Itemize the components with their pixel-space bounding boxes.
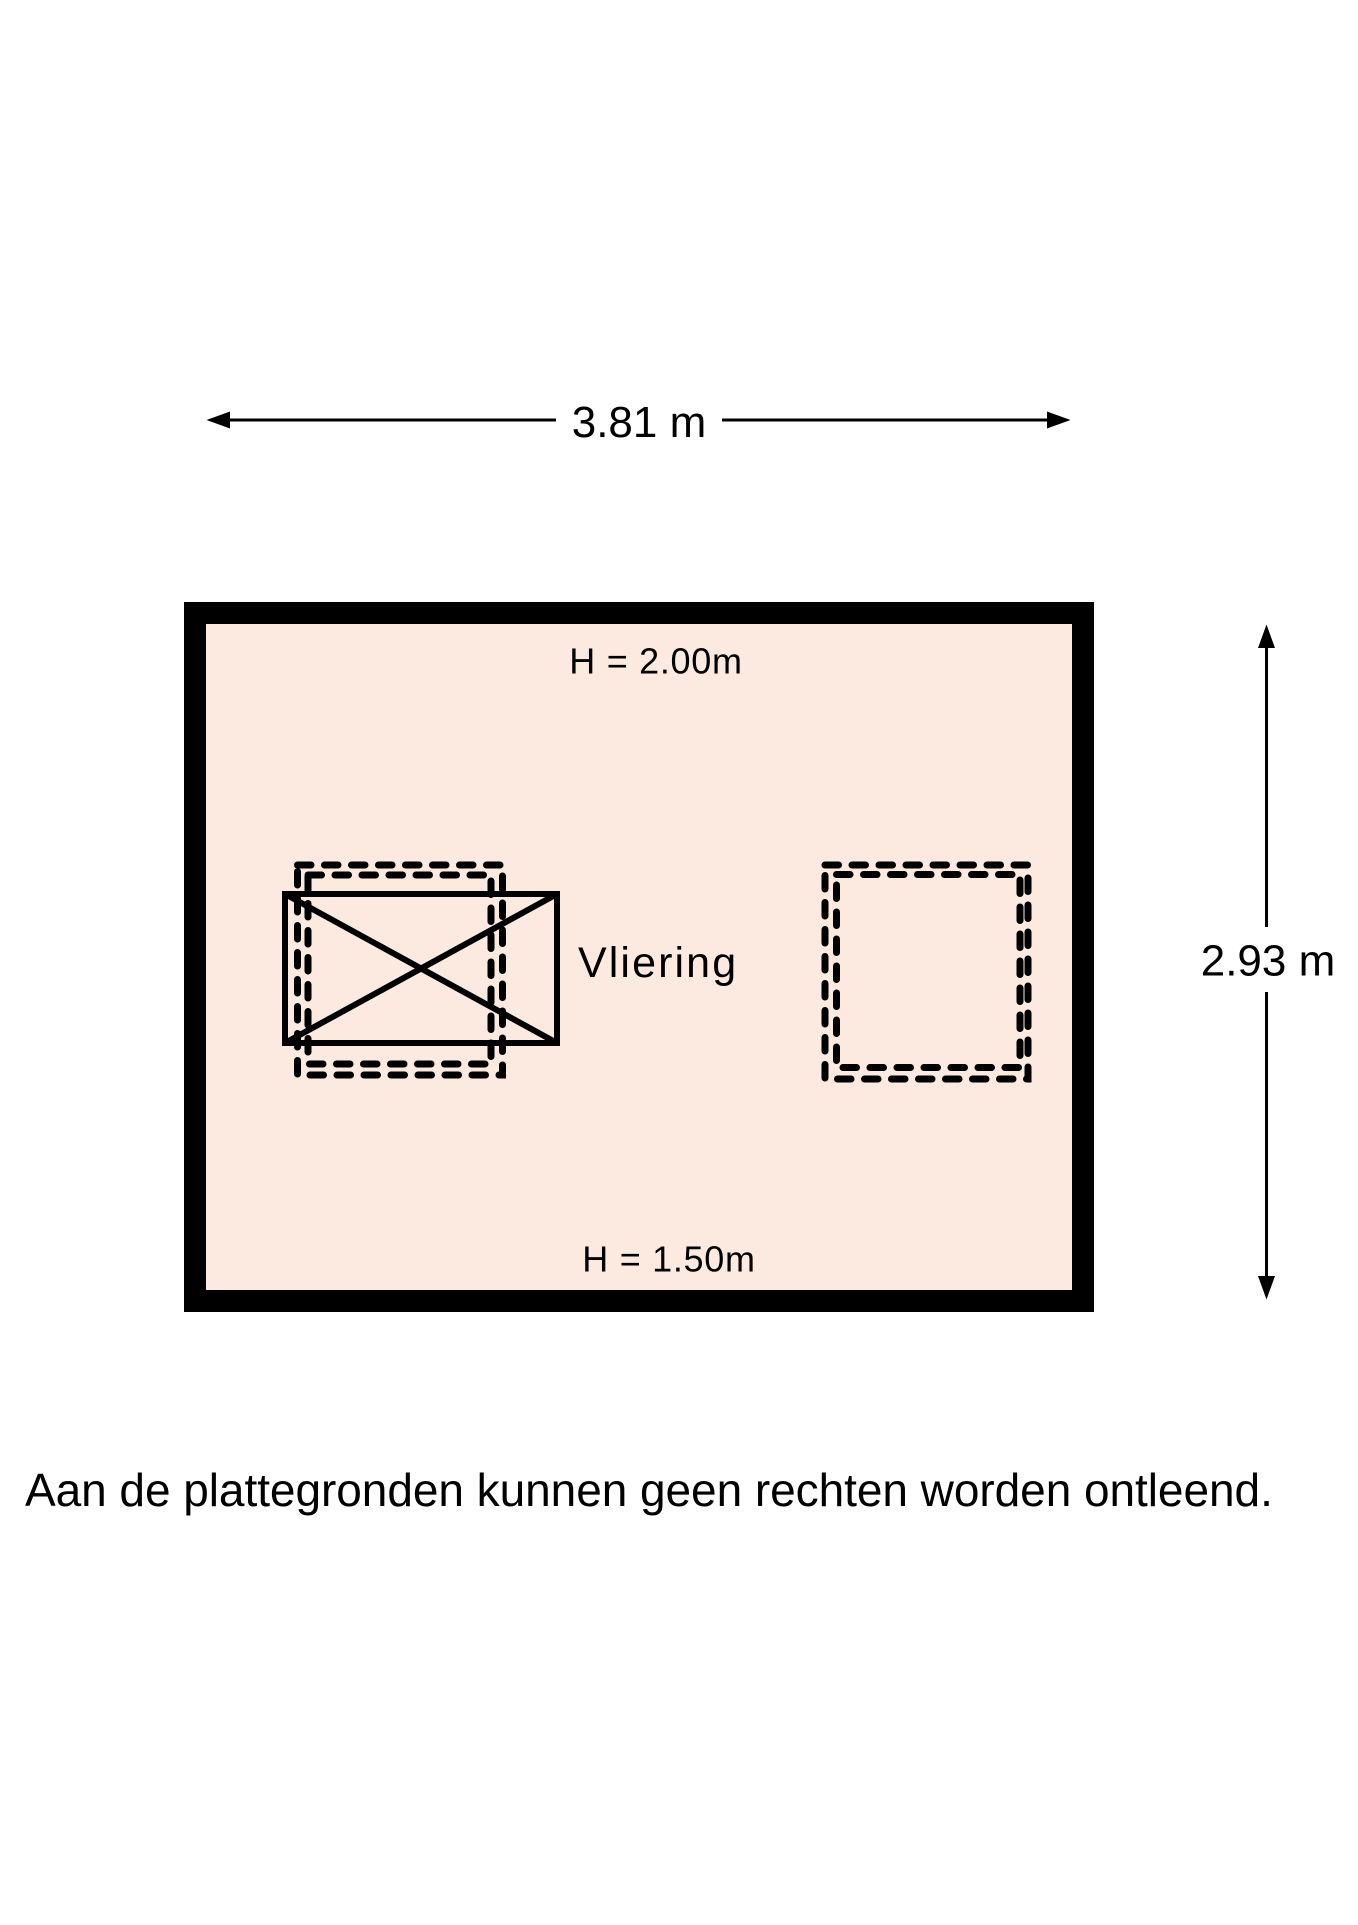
svg-text:Vliering: Vliering [578,939,738,987]
svg-text:2.93 m: 2.93 m [1201,937,1336,986]
svg-text:H = 1.50m: H = 1.50m [582,1239,755,1280]
svg-text:3.81 m: 3.81 m [572,398,707,447]
svg-text:H = 2.00m: H = 2.00m [569,641,742,682]
svg-text:Aan de plattegronden kunnen ge: Aan de plattegronden kunnen geen rechten… [25,1464,1273,1516]
